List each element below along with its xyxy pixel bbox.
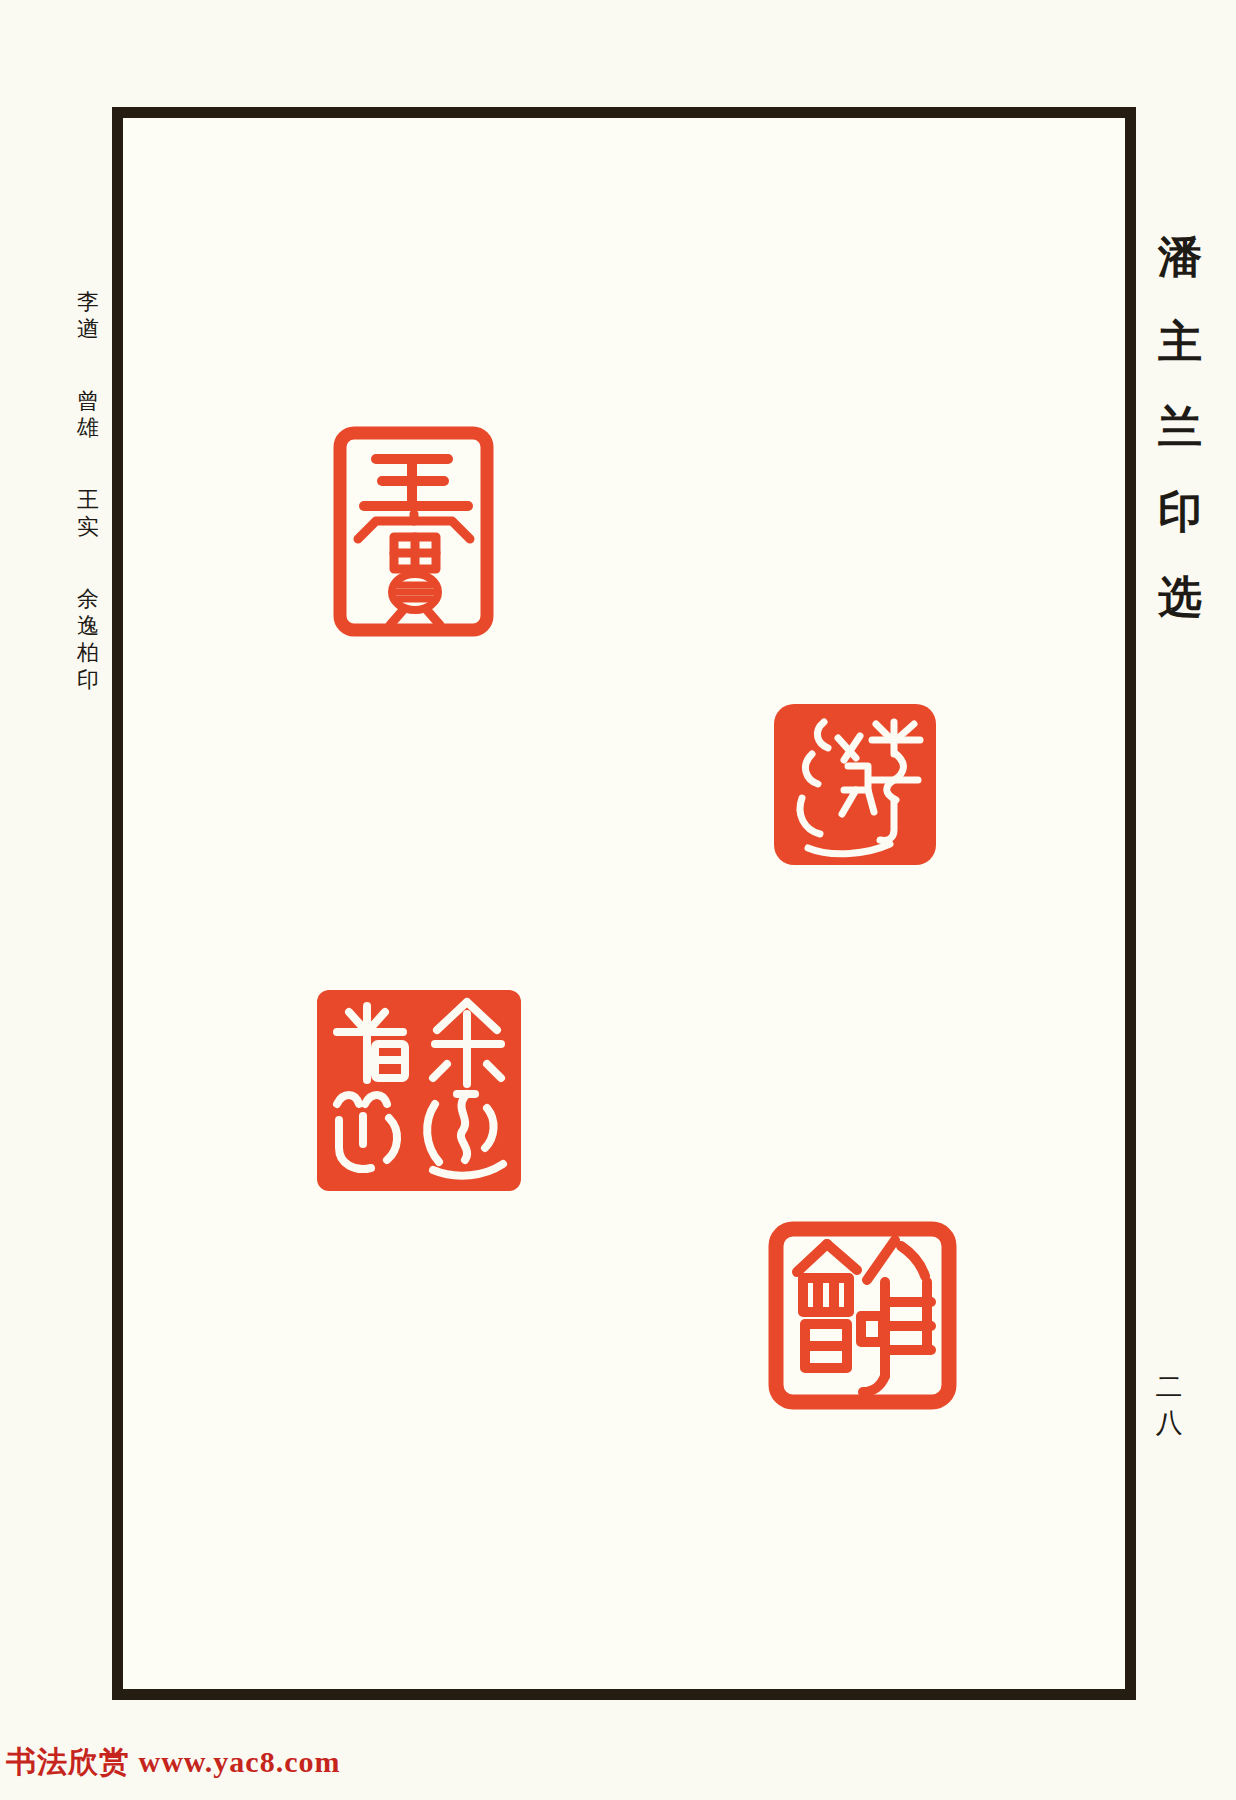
caption-char: 曾 [74, 387, 102, 414]
caption-char: 李 [74, 288, 102, 315]
caption-char: 王 [74, 486, 102, 513]
book-page-scan: 潘 主 兰 印 选 李 遒 曾 雄 王 实 余 逸 柏 印 二 八 [0, 0, 1236, 1800]
seal-impression-liqiu [772, 702, 938, 867]
page-number: 二 八 [1152, 1372, 1186, 1444]
seal-zengxiong-graphic [765, 1218, 960, 1413]
page-border-frame [112, 107, 1136, 1700]
caption-char: 余 [74, 585, 102, 612]
seal-impression-yuyibaiyin [315, 988, 523, 1193]
caption-char: 印 [74, 666, 102, 693]
caption-group-zengxiong: 曾 雄 [74, 387, 102, 441]
caption-char: 逸 [74, 612, 102, 639]
caption-char: 遒 [74, 315, 102, 342]
seal-yuyibaiyin-graphic [315, 988, 523, 1193]
title-char: 潘 [1154, 235, 1206, 281]
caption-group-liqiu: 李 遒 [74, 288, 102, 342]
caption-char: 柏 [74, 639, 102, 666]
seal-liqiu-graphic [772, 702, 938, 867]
caption-char: 实 [74, 513, 102, 540]
seal-wangshi-graphic [332, 425, 495, 638]
watermark-text: 书法欣赏 www.yac8.com [6, 1742, 340, 1783]
page-number-char: 二 [1152, 1372, 1186, 1402]
caption-group-yuyibaiyin: 余 逸 柏 印 [74, 585, 102, 693]
seal-impression-wangshi [332, 425, 495, 638]
title-char: 兰 [1154, 405, 1206, 451]
page-number-char: 八 [1152, 1408, 1186, 1438]
title-char: 主 [1154, 320, 1206, 366]
left-caption-column: 李 遒 曾 雄 王 实 余 逸 柏 印 [74, 288, 102, 738]
caption-group-wangshi: 王 实 [74, 486, 102, 540]
title-char: 选 [1154, 575, 1206, 621]
seal-impression-zengxiong [765, 1218, 960, 1413]
caption-char: 雄 [74, 414, 102, 441]
title-char: 印 [1154, 490, 1206, 536]
right-title-column: 潘 主 兰 印 选 [1154, 235, 1206, 660]
